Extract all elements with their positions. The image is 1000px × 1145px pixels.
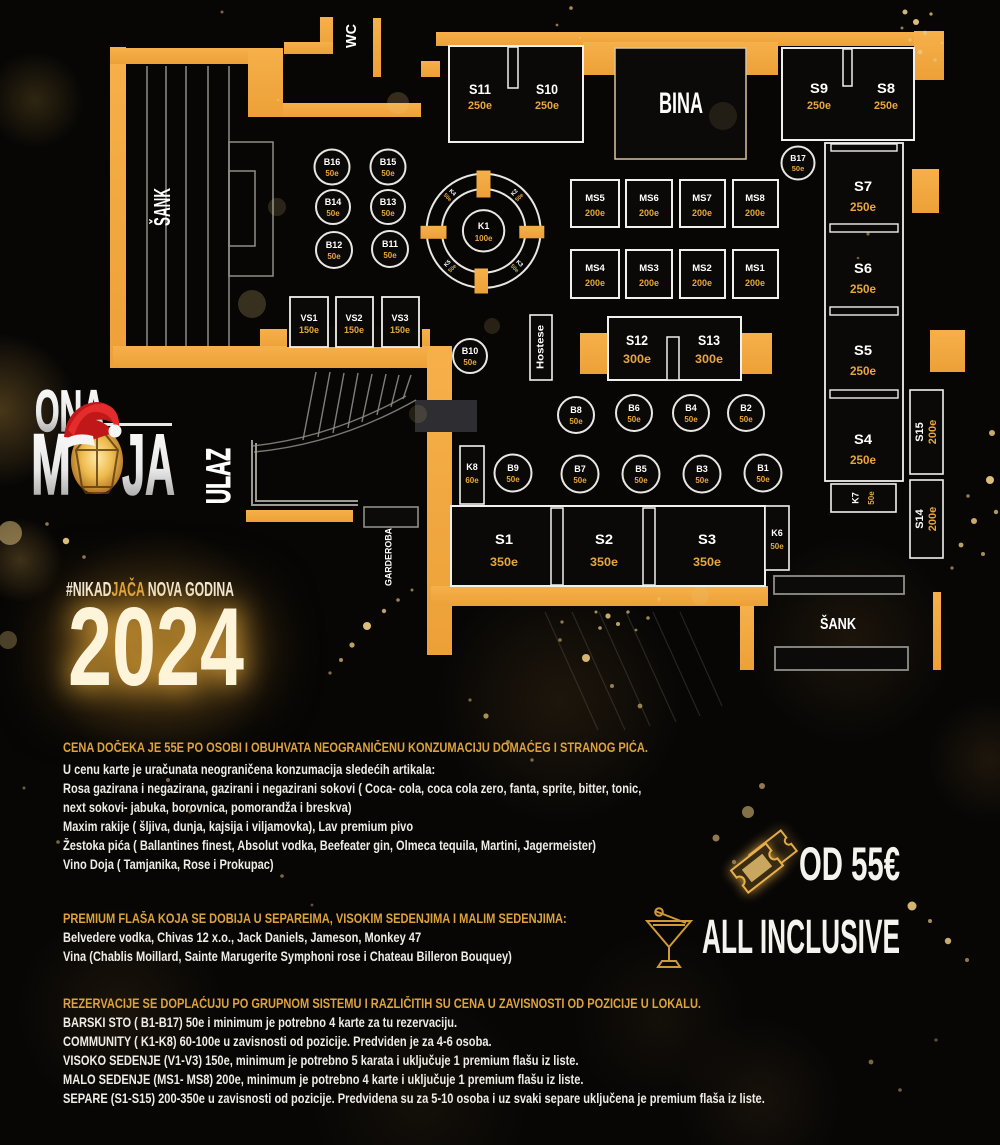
svg-text:250e: 250e [850, 282, 876, 296]
svg-text:VS2: VS2 [345, 313, 362, 323]
svg-text:50e: 50e [770, 542, 784, 551]
svg-text:50e: 50e [381, 209, 395, 218]
svg-text:50e: 50e [684, 415, 698, 424]
svg-text:250e: 250e [850, 453, 876, 467]
svg-text:50e: 50e [569, 417, 583, 426]
svg-text:Hostese: Hostese [536, 325, 547, 369]
svg-text:S14: S14 [914, 508, 926, 528]
svg-text:MS7: MS7 [692, 193, 712, 204]
svg-text:VS3: VS3 [391, 313, 408, 323]
svg-text:B9: B9 [507, 463, 519, 473]
svg-text:K8: K8 [466, 462, 478, 472]
svg-text:200e: 200e [585, 208, 605, 218]
svg-text:MS3: MS3 [639, 263, 659, 274]
svg-text:K1: K1 [478, 221, 490, 231]
svg-text:50e: 50e [573, 476, 587, 485]
svg-text:B6: B6 [628, 403, 640, 413]
svg-text:B14: B14 [325, 197, 342, 207]
svg-text:K6: K6 [771, 528, 783, 538]
svg-text:ALL INCLUSIVE: ALL INCLUSIVE [702, 911, 900, 964]
svg-text:200e: 200e [639, 208, 659, 218]
svg-text:50e: 50e [634, 476, 648, 485]
svg-text:200e: 200e [745, 208, 765, 218]
svg-text:B4: B4 [685, 403, 697, 413]
svg-text:50e: 50e [627, 415, 641, 424]
svg-text:B15: B15 [380, 157, 397, 167]
svg-text:S8: S8 [877, 80, 895, 96]
svg-text:B7: B7 [574, 464, 586, 474]
svg-text:50e: 50e [506, 475, 520, 484]
svg-text:200e: 200e [692, 278, 712, 288]
svg-text:250e: 250e [468, 100, 492, 112]
svg-text:B10: B10 [462, 346, 479, 356]
svg-text:300e: 300e [623, 352, 651, 366]
svg-text:50e: 50e [327, 252, 341, 261]
svg-text:50e: 50e [381, 169, 395, 178]
svg-text:350e: 350e [590, 555, 618, 569]
svg-text:S5: S5 [854, 342, 872, 358]
svg-text:50e: 50e [695, 476, 709, 485]
svg-text:MS4: MS4 [585, 263, 605, 274]
svg-text:200e: 200e [927, 420, 939, 444]
svg-text:250e: 250e [535, 100, 559, 112]
svg-text:S4: S4 [854, 431, 872, 447]
svg-text:VS1: VS1 [300, 313, 317, 323]
svg-text:200e: 200e [585, 278, 605, 288]
svg-text:S3: S3 [698, 531, 716, 547]
svg-text:B13: B13 [380, 197, 397, 207]
svg-text:B12: B12 [326, 240, 343, 250]
svg-text:S13: S13 [698, 332, 720, 348]
svg-text:MS1: MS1 [745, 263, 765, 274]
svg-text:MS6: MS6 [639, 193, 659, 204]
svg-text:350e: 350e [693, 555, 721, 569]
svg-text:MS8: MS8 [745, 193, 765, 204]
svg-text:ŠANK: ŠANK [148, 188, 175, 226]
svg-text:200e: 200e [927, 507, 939, 531]
svg-text:S6: S6 [854, 260, 872, 276]
svg-text:S12: S12 [626, 332, 648, 348]
svg-text:ŠANK: ŠANK [820, 614, 856, 633]
svg-text:B5: B5 [635, 464, 647, 474]
svg-text:60e: 60e [465, 476, 479, 485]
svg-text:MS5: MS5 [585, 193, 605, 204]
svg-text:B16: B16 [324, 157, 341, 167]
svg-text:50e: 50e [463, 358, 477, 367]
svg-text:50e: 50e [792, 164, 805, 173]
svg-text:250e: 250e [850, 200, 876, 214]
svg-text:250e: 250e [850, 364, 876, 378]
svg-text:200e: 200e [692, 208, 712, 218]
svg-text:250e: 250e [874, 100, 898, 112]
svg-text:50e: 50e [326, 209, 340, 218]
svg-text:S9: S9 [810, 80, 828, 96]
svg-text:S15: S15 [914, 422, 926, 442]
svg-text:100e: 100e [475, 234, 493, 243]
svg-text:50e: 50e [867, 491, 876, 505]
svg-text:BINA: BINA [659, 87, 703, 120]
svg-text:150e: 150e [299, 325, 319, 335]
svg-text:200e: 200e [639, 278, 659, 288]
svg-text:ULAZ: ULAZ [200, 448, 238, 504]
svg-text:50e: 50e [756, 475, 770, 484]
svg-text:50e: 50e [739, 415, 753, 424]
svg-text:200e: 200e [745, 278, 765, 288]
svg-text:2024: 2024 [68, 585, 244, 709]
svg-text:B11: B11 [382, 239, 398, 249]
svg-text:300e: 300e [695, 352, 723, 366]
svg-text:S1: S1 [495, 531, 513, 547]
svg-text:350e: 350e [490, 555, 518, 569]
svg-text:B3: B3 [696, 464, 708, 474]
svg-text:S7: S7 [854, 178, 872, 194]
svg-text:B8: B8 [570, 405, 582, 415]
svg-text:50e: 50e [383, 251, 397, 260]
svg-text:B2: B2 [740, 403, 752, 413]
svg-text:S10: S10 [536, 81, 558, 97]
svg-text:JA: JA [122, 417, 175, 513]
svg-text:250e: 250e [807, 100, 831, 112]
svg-text:MS2: MS2 [692, 263, 712, 274]
svg-text:50e: 50e [325, 169, 339, 178]
svg-text:150e: 150e [344, 325, 364, 335]
svg-text:S11: S11 [469, 81, 491, 97]
svg-text:B1: B1 [757, 463, 769, 473]
svg-text:K7: K7 [850, 492, 860, 504]
svg-text:WC: WC [343, 24, 360, 48]
svg-text:GARDEROBA: GARDEROBA [384, 528, 395, 586]
svg-text:S2: S2 [595, 531, 613, 547]
svg-text:OD 55€: OD 55€ [799, 837, 900, 890]
svg-text:150e: 150e [390, 325, 410, 335]
svg-text:B17: B17 [790, 153, 806, 163]
